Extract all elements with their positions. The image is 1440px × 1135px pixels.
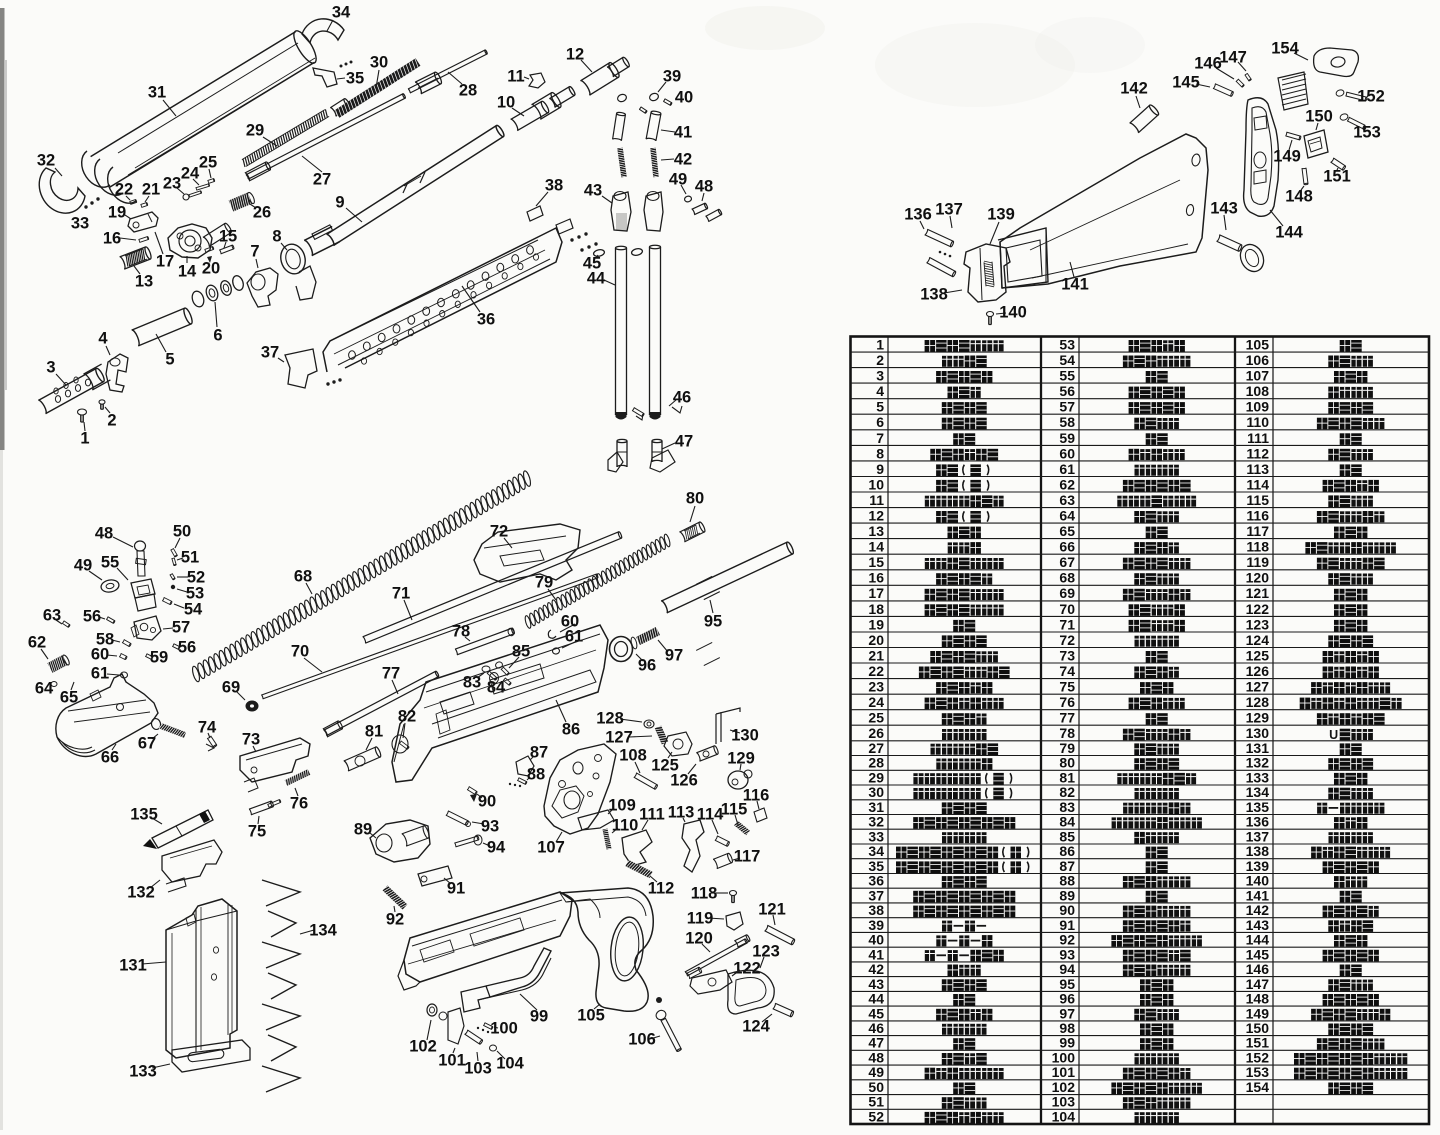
svg-text:89: 89 — [1059, 887, 1075, 903]
svg-text:139: 139 — [1246, 858, 1270, 874]
svg-text:37: 37 — [868, 887, 884, 903]
svg-text:11: 11 — [507, 68, 524, 86]
svg-text:100: 100 — [490, 1020, 518, 1038]
svg-text:43: 43 — [584, 182, 602, 200]
svg-text:88: 88 — [527, 766, 545, 784]
svg-text:121: 121 — [758, 901, 786, 919]
svg-text:91: 91 — [1059, 917, 1075, 933]
svg-text:9: 9 — [335, 194, 344, 212]
svg-text:64: 64 — [1059, 508, 1075, 524]
svg-text:35: 35 — [346, 70, 364, 88]
svg-text:73: 73 — [242, 731, 260, 749]
svg-text:105: 105 — [1246, 336, 1270, 352]
svg-text:76: 76 — [290, 795, 308, 813]
svg-text:149: 149 — [1246, 1005, 1270, 1021]
svg-text:90: 90 — [478, 793, 496, 811]
svg-text:42: 42 — [674, 151, 692, 169]
svg-text:84: 84 — [1059, 814, 1075, 830]
svg-text:40: 40 — [868, 932, 884, 948]
svg-text:30: 30 — [370, 54, 388, 72]
svg-text:66: 66 — [101, 749, 119, 767]
svg-text:35: 35 — [868, 858, 884, 874]
svg-text:49: 49 — [868, 1064, 884, 1080]
svg-text:81: 81 — [365, 723, 383, 741]
svg-text:76: 76 — [1059, 694, 1075, 710]
svg-text:135: 135 — [130, 806, 158, 824]
svg-text:107: 107 — [537, 839, 565, 857]
svg-text:119: 119 — [1246, 554, 1269, 570]
svg-text:44: 44 — [587, 270, 606, 288]
svg-text:137: 137 — [935, 201, 963, 219]
svg-text:119: 119 — [687, 910, 714, 928]
svg-text:21: 21 — [868, 647, 884, 663]
svg-text:63: 63 — [1059, 492, 1075, 508]
svg-text:32: 32 — [37, 152, 55, 170]
svg-text:37: 37 — [261, 344, 279, 362]
svg-text:92: 92 — [386, 911, 404, 929]
svg-text:38: 38 — [545, 177, 563, 195]
svg-text:106: 106 — [628, 1031, 656, 1049]
svg-text:6: 6 — [213, 327, 222, 345]
svg-text:110: 110 — [1246, 414, 1269, 430]
svg-text:129: 129 — [727, 750, 755, 768]
svg-text:24: 24 — [868, 694, 884, 710]
svg-text:75: 75 — [1059, 679, 1075, 695]
svg-text:24: 24 — [181, 165, 200, 183]
svg-text:154: 154 — [1246, 1079, 1270, 1095]
svg-text:138: 138 — [1246, 843, 1270, 859]
svg-text:16: 16 — [868, 570, 884, 586]
svg-text:43: 43 — [868, 976, 884, 992]
svg-text:28: 28 — [459, 82, 477, 100]
svg-text:4: 4 — [98, 330, 108, 348]
svg-text:121: 121 — [1246, 585, 1270, 601]
svg-text:117: 117 — [734, 848, 761, 866]
svg-text:28: 28 — [868, 755, 884, 771]
svg-text:151: 151 — [1246, 1035, 1270, 1051]
svg-text:77: 77 — [1059, 710, 1075, 726]
svg-text:101: 101 — [438, 1052, 466, 1070]
svg-text:79: 79 — [1059, 740, 1075, 756]
svg-text:4: 4 — [876, 383, 884, 399]
svg-text:1: 1 — [80, 430, 89, 448]
svg-text:130: 130 — [731, 727, 759, 745]
svg-text:U: U — [1329, 728, 1338, 742]
svg-text:128: 128 — [1246, 694, 1270, 710]
svg-text:36: 36 — [477, 311, 495, 329]
svg-text:8: 8 — [272, 228, 281, 246]
svg-text:74: 74 — [1059, 663, 1075, 679]
svg-text:17: 17 — [156, 253, 174, 271]
svg-text:13: 13 — [135, 273, 153, 291]
svg-text:26: 26 — [868, 725, 884, 741]
svg-text:118: 118 — [691, 885, 718, 903]
svg-text:137: 137 — [1246, 828, 1270, 844]
svg-text:87: 87 — [530, 744, 548, 762]
svg-text:138: 138 — [920, 286, 948, 304]
svg-text:23: 23 — [868, 679, 884, 695]
svg-text:97: 97 — [665, 647, 683, 665]
svg-text:51: 51 — [868, 1094, 884, 1110]
svg-text:48: 48 — [95, 525, 113, 543]
svg-text:59: 59 — [1059, 430, 1075, 446]
svg-text:146: 146 — [1194, 55, 1222, 73]
svg-text:104: 104 — [1052, 1108, 1076, 1124]
svg-text:131: 131 — [119, 957, 147, 975]
svg-text:60: 60 — [1059, 445, 1075, 461]
svg-text:134: 134 — [1246, 784, 1270, 800]
svg-text:89: 89 — [354, 821, 372, 839]
svg-text:108: 108 — [619, 747, 647, 765]
svg-text:144: 144 — [1246, 932, 1270, 948]
svg-text:36: 36 — [868, 873, 884, 889]
svg-text:111: 111 — [1247, 430, 1269, 446]
svg-text:77: 77 — [382, 665, 400, 683]
svg-text:94: 94 — [487, 839, 506, 857]
svg-text:57: 57 — [1059, 399, 1075, 415]
svg-text:12: 12 — [868, 508, 884, 524]
svg-text:135: 135 — [1246, 799, 1270, 815]
svg-text:78: 78 — [1059, 725, 1075, 741]
svg-text:25: 25 — [199, 154, 217, 172]
svg-text:23: 23 — [163, 175, 181, 193]
svg-text:53: 53 — [1059, 336, 1075, 352]
svg-text:10: 10 — [497, 94, 515, 112]
svg-text:133: 133 — [1246, 769, 1270, 785]
svg-text:34: 34 — [332, 4, 351, 22]
svg-text:29: 29 — [246, 122, 264, 140]
svg-text:56: 56 — [1059, 383, 1075, 399]
svg-text:110: 110 — [612, 817, 639, 835]
svg-text:70: 70 — [291, 643, 309, 661]
svg-text:145: 145 — [1246, 946, 1270, 962]
svg-text:125: 125 — [1246, 647, 1270, 663]
svg-text:86: 86 — [1059, 843, 1075, 859]
svg-text:148: 148 — [1285, 188, 1313, 206]
svg-text:114: 114 — [1246, 476, 1269, 492]
svg-text:113: 113 — [668, 804, 695, 822]
svg-text:31: 31 — [148, 84, 166, 102]
svg-text:152: 152 — [1357, 88, 1385, 106]
svg-text:148: 148 — [1246, 991, 1270, 1007]
svg-text:122: 122 — [1246, 601, 1270, 617]
svg-text:56: 56 — [83, 608, 101, 626]
svg-text:103: 103 — [464, 1060, 492, 1078]
svg-text:3: 3 — [876, 368, 884, 384]
svg-text:61: 61 — [1059, 461, 1075, 477]
svg-text:115: 115 — [1246, 492, 1269, 508]
svg-text:63: 63 — [43, 607, 61, 625]
svg-text:47: 47 — [868, 1035, 884, 1051]
svg-text:152: 152 — [1246, 1050, 1270, 1066]
svg-text:26: 26 — [253, 204, 271, 222]
svg-text:12: 12 — [566, 46, 584, 64]
svg-text:79: 79 — [535, 574, 553, 592]
svg-text:16: 16 — [103, 230, 121, 248]
svg-text:107: 107 — [1246, 368, 1270, 384]
svg-text:101: 101 — [1052, 1064, 1076, 1080]
svg-text:106: 106 — [1246, 352, 1270, 368]
svg-text:95: 95 — [704, 613, 722, 631]
svg-text:141: 141 — [1061, 276, 1089, 294]
svg-text:62: 62 — [28, 634, 46, 652]
svg-text:153: 153 — [1353, 124, 1381, 142]
svg-text:122: 122 — [733, 960, 761, 978]
svg-text:19: 19 — [108, 204, 126, 222]
svg-text:85: 85 — [1059, 828, 1075, 844]
svg-text:100: 100 — [1052, 1050, 1076, 1066]
svg-text:3: 3 — [46, 359, 55, 377]
svg-text:46: 46 — [868, 1020, 884, 1036]
svg-text:126: 126 — [670, 772, 698, 790]
svg-text:2: 2 — [107, 412, 116, 430]
svg-text:55: 55 — [1059, 368, 1075, 384]
svg-text:71: 71 — [1059, 616, 1075, 632]
svg-text:132: 132 — [127, 884, 155, 902]
svg-text:144: 144 — [1275, 224, 1303, 242]
svg-text:109: 109 — [608, 797, 636, 815]
svg-text:108: 108 — [1246, 383, 1270, 399]
svg-text:109: 109 — [1246, 399, 1270, 415]
svg-text:136: 136 — [1246, 814, 1270, 830]
svg-text:96: 96 — [638, 657, 656, 675]
svg-text:25: 25 — [868, 710, 884, 726]
svg-text:139: 139 — [987, 206, 1015, 224]
svg-text:120: 120 — [685, 930, 713, 948]
svg-text:124: 124 — [1246, 632, 1270, 648]
svg-text:103: 103 — [1052, 1094, 1076, 1110]
svg-text:15: 15 — [219, 228, 237, 246]
svg-text:50: 50 — [868, 1079, 884, 1095]
svg-text:70: 70 — [1059, 601, 1075, 617]
svg-text:104: 104 — [496, 1055, 524, 1073]
svg-text:8: 8 — [876, 445, 884, 461]
svg-text:69: 69 — [1059, 585, 1075, 601]
svg-text:27: 27 — [868, 740, 884, 756]
svg-text:153: 153 — [1246, 1064, 1270, 1080]
svg-text:91: 91 — [447, 880, 465, 898]
svg-text:39: 39 — [663, 68, 681, 86]
svg-text:44: 44 — [868, 991, 884, 1007]
svg-text:39: 39 — [868, 917, 884, 933]
svg-text:66: 66 — [1059, 539, 1075, 555]
svg-text:80: 80 — [686, 490, 704, 508]
svg-text:78: 78 — [452, 623, 470, 641]
svg-text:141: 141 — [1246, 887, 1270, 903]
svg-text:48: 48 — [695, 178, 713, 196]
svg-text:111: 111 — [639, 806, 665, 824]
svg-text:118: 118 — [1246, 539, 1269, 555]
svg-text:116: 116 — [1246, 508, 1269, 524]
svg-text:81: 81 — [1059, 769, 1075, 785]
svg-text:38: 38 — [868, 902, 884, 918]
svg-text:128: 128 — [596, 710, 624, 728]
svg-text:95: 95 — [1059, 976, 1075, 992]
svg-text:142: 142 — [1120, 80, 1148, 98]
svg-text:146: 146 — [1246, 961, 1270, 977]
svg-text:54: 54 — [184, 601, 203, 619]
svg-text:143: 143 — [1246, 917, 1270, 933]
svg-text:7: 7 — [876, 430, 884, 446]
svg-text:102: 102 — [409, 1038, 437, 1056]
svg-text:61: 61 — [91, 665, 109, 683]
svg-text:45: 45 — [868, 1005, 884, 1021]
svg-text:31: 31 — [868, 799, 884, 815]
svg-text:93: 93 — [1059, 946, 1075, 962]
svg-text:5: 5 — [165, 351, 174, 369]
svg-text:10: 10 — [868, 476, 884, 492]
svg-text:87: 87 — [1059, 858, 1075, 874]
svg-text:41: 41 — [868, 946, 884, 962]
svg-text:145: 145 — [1172, 74, 1200, 92]
svg-text:98: 98 — [1059, 1020, 1075, 1036]
svg-text:93: 93 — [481, 818, 499, 836]
svg-text:65: 65 — [1059, 523, 1075, 539]
svg-text:150: 150 — [1246, 1020, 1270, 1036]
svg-text:130: 130 — [1246, 725, 1270, 741]
svg-text:74: 74 — [198, 719, 217, 737]
svg-text:68: 68 — [1059, 570, 1075, 586]
svg-text:40: 40 — [675, 89, 693, 107]
svg-text:19: 19 — [868, 616, 884, 632]
svg-text:102: 102 — [1052, 1079, 1076, 1095]
svg-text:33: 33 — [71, 215, 89, 233]
svg-text:17: 17 — [868, 585, 884, 601]
svg-text:51: 51 — [181, 549, 199, 567]
svg-text:57: 57 — [172, 619, 190, 637]
svg-text:90: 90 — [1059, 902, 1075, 918]
svg-text:30: 30 — [868, 784, 884, 800]
svg-text:2: 2 — [876, 352, 884, 368]
svg-text:143: 143 — [1210, 200, 1238, 218]
svg-text:147: 147 — [1246, 976, 1270, 992]
svg-text:132: 132 — [1246, 755, 1270, 771]
svg-text:7: 7 — [250, 243, 259, 261]
svg-text:34: 34 — [868, 843, 884, 859]
svg-text:62: 62 — [1059, 476, 1075, 492]
svg-text:5: 5 — [876, 399, 884, 415]
svg-text:14: 14 — [178, 263, 197, 281]
svg-text:52: 52 — [868, 1108, 884, 1124]
svg-text:150: 150 — [1305, 108, 1333, 126]
svg-text:94: 94 — [1059, 961, 1075, 977]
svg-text:11: 11 — [869, 492, 884, 508]
svg-text:18: 18 — [868, 601, 884, 617]
svg-text:33: 33 — [868, 828, 884, 844]
svg-text:116: 116 — [743, 787, 770, 805]
svg-text:123: 123 — [1246, 616, 1270, 632]
svg-text:49: 49 — [74, 557, 92, 575]
svg-text:134: 134 — [309, 922, 337, 940]
svg-text:131: 131 — [1246, 740, 1270, 756]
svg-text:82: 82 — [1059, 784, 1075, 800]
svg-text:112: 112 — [1246, 445, 1269, 461]
svg-text:140: 140 — [999, 304, 1027, 322]
svg-text:82: 82 — [398, 708, 416, 726]
svg-text:112: 112 — [648, 880, 675, 898]
svg-text:68: 68 — [294, 568, 312, 586]
svg-text:69: 69 — [222, 679, 240, 697]
svg-text:127: 127 — [1246, 679, 1270, 695]
svg-text:27: 27 — [313, 171, 331, 189]
svg-text:14: 14 — [868, 539, 884, 555]
svg-text:64: 64 — [35, 680, 54, 698]
svg-text:42: 42 — [868, 961, 884, 977]
svg-text:47: 47 — [675, 433, 693, 451]
svg-text:41: 41 — [674, 124, 692, 142]
svg-text:117: 117 — [1246, 523, 1269, 539]
svg-text:99: 99 — [1059, 1035, 1075, 1051]
svg-text:67: 67 — [138, 735, 156, 753]
svg-text:50: 50 — [173, 523, 191, 541]
svg-text:72: 72 — [1059, 632, 1075, 648]
svg-text:120: 120 — [1246, 570, 1270, 586]
svg-text:32: 32 — [868, 814, 884, 830]
svg-text:21: 21 — [142, 181, 160, 199]
svg-text:1: 1 — [876, 336, 884, 352]
svg-text:46: 46 — [673, 389, 691, 407]
svg-text:133: 133 — [129, 1063, 157, 1081]
svg-text:6: 6 — [876, 414, 884, 430]
svg-text:9: 9 — [876, 461, 884, 477]
svg-text:123: 123 — [752, 943, 780, 961]
svg-text:105: 105 — [577, 1007, 605, 1025]
svg-text:154: 154 — [1271, 40, 1299, 58]
svg-text:72: 72 — [490, 523, 508, 541]
svg-text:20: 20 — [868, 632, 884, 648]
svg-text:13: 13 — [868, 523, 884, 539]
svg-text:80: 80 — [1059, 755, 1075, 771]
svg-text:73: 73 — [1059, 647, 1075, 663]
svg-text:97: 97 — [1059, 1005, 1075, 1021]
svg-text:55: 55 — [101, 554, 119, 572]
svg-text:48: 48 — [868, 1050, 884, 1066]
svg-text:22: 22 — [115, 181, 133, 199]
svg-text:142: 142 — [1246, 902, 1270, 918]
svg-text:99: 99 — [530, 1008, 548, 1026]
svg-text:136: 136 — [904, 206, 932, 224]
svg-text:60: 60 — [91, 646, 109, 664]
svg-text:92: 92 — [1059, 932, 1075, 948]
svg-text:127: 127 — [605, 729, 633, 747]
svg-text:59: 59 — [150, 649, 168, 667]
svg-text:29: 29 — [868, 769, 884, 785]
svg-text:113: 113 — [1246, 461, 1269, 477]
svg-text:22: 22 — [868, 663, 884, 679]
svg-text:54: 54 — [1059, 352, 1075, 368]
svg-text:58: 58 — [1059, 414, 1075, 430]
svg-text:88: 88 — [1059, 873, 1075, 889]
svg-text:49: 49 — [669, 171, 687, 189]
svg-text:75: 75 — [248, 823, 266, 841]
svg-text:67: 67 — [1059, 554, 1075, 570]
svg-text:83: 83 — [1059, 799, 1075, 815]
svg-text:140: 140 — [1246, 873, 1270, 889]
svg-text:86: 86 — [562, 721, 580, 739]
svg-text:71: 71 — [392, 585, 410, 603]
svg-text:126: 126 — [1246, 663, 1270, 679]
svg-text:124: 124 — [742, 1018, 770, 1036]
svg-text:151: 151 — [1323, 168, 1351, 186]
svg-text:96: 96 — [1059, 991, 1075, 1007]
svg-text:20: 20 — [202, 260, 220, 278]
svg-text:56: 56 — [178, 639, 196, 657]
svg-text:129: 129 — [1246, 710, 1270, 726]
svg-text:15: 15 — [868, 554, 884, 570]
svg-text:149: 149 — [1273, 148, 1301, 166]
svg-text:147: 147 — [1219, 49, 1247, 67]
